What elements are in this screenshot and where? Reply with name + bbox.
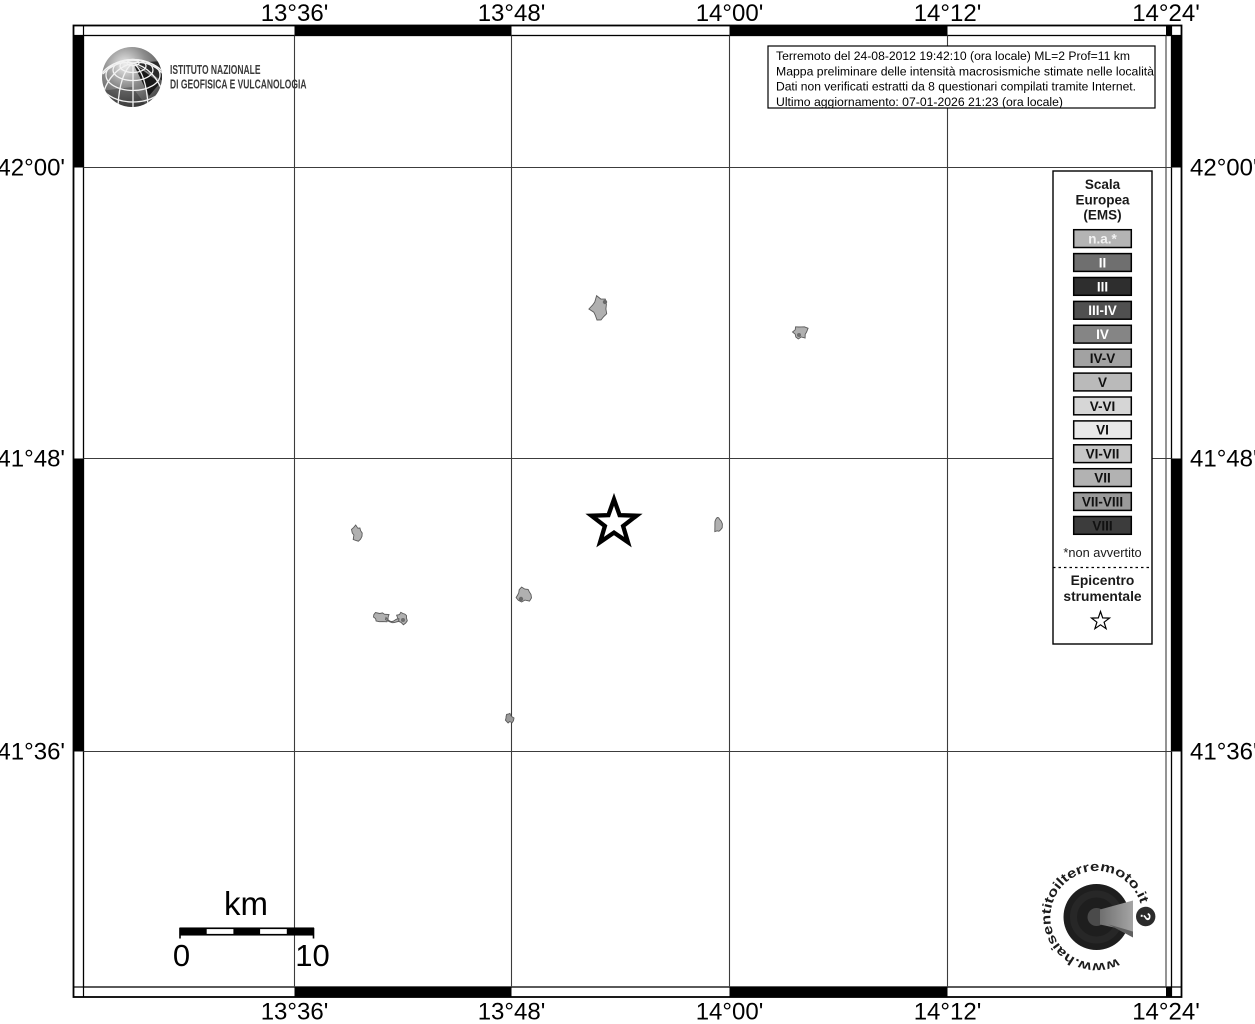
- svg-text:V: V: [1098, 375, 1107, 390]
- svg-text:Terremoto del 24-08-2012 19:42: Terremoto del 24-08-2012 19:42:10 (ora l…: [776, 49, 1130, 63]
- svg-text:*non avvertito: *non avvertito: [1063, 545, 1141, 560]
- svg-text:13°48': 13°48': [478, 999, 546, 1024]
- svg-text:14°00': 14°00': [696, 999, 764, 1024]
- svg-text:14°12': 14°12': [914, 0, 982, 27]
- svg-text:III: III: [1097, 279, 1108, 294]
- svg-text:?: ?: [1137, 912, 1154, 922]
- svg-text:DI GEOFISICA E VULCANOLOGIA: DI GEOFISICA E VULCANOLOGIA: [170, 78, 307, 92]
- svg-text:V-VI: V-VI: [1090, 399, 1116, 414]
- svg-text:14°24': 14°24': [1132, 999, 1200, 1024]
- svg-text:41°36': 41°36': [0, 739, 65, 766]
- svg-text:strumentale: strumentale: [1063, 589, 1142, 604]
- svg-text:II: II: [1099, 255, 1107, 270]
- svg-text:14°00': 14°00': [696, 0, 764, 27]
- svg-text:0: 0: [173, 938, 190, 973]
- svg-text:42°00': 42°00': [1190, 155, 1255, 182]
- svg-text:Scala: Scala: [1085, 177, 1121, 192]
- svg-text:10: 10: [295, 938, 329, 973]
- svg-text:13°36': 13°36': [261, 999, 329, 1024]
- svg-text:Europea: Europea: [1075, 192, 1130, 207]
- svg-text:14°12': 14°12': [914, 999, 982, 1024]
- svg-text:III-IV: III-IV: [1088, 303, 1117, 318]
- svg-text:41°48': 41°48': [0, 446, 65, 473]
- svg-text:VII: VII: [1094, 471, 1111, 486]
- svg-text:VII-VIII: VII-VIII: [1082, 494, 1123, 509]
- svg-text:n.a.*: n.a.*: [1088, 232, 1117, 247]
- svg-text:Dati non verificati estratti d: Dati non verificati estratti da 8 questi…: [776, 80, 1136, 94]
- svg-text:Ultimo aggiornamento: 07-01-20: Ultimo aggiornamento: 07-01-2026 21:23 (…: [776, 95, 1063, 109]
- svg-text:41°36': 41°36': [1190, 739, 1255, 766]
- svg-text:ISTITUTO NAZIONALE: ISTITUTO NAZIONALE: [170, 63, 261, 77]
- svg-text:42°00': 42°00': [0, 155, 65, 182]
- svg-text:VIII: VIII: [1092, 518, 1112, 533]
- svg-text:(EMS): (EMS): [1083, 208, 1121, 223]
- svg-text:IV-V: IV-V: [1090, 351, 1116, 366]
- svg-text:13°36': 13°36': [261, 0, 329, 27]
- svg-text:Epicentro: Epicentro: [1071, 573, 1135, 588]
- svg-text:VI-VII: VI-VII: [1086, 447, 1120, 462]
- svg-text:13°48': 13°48': [478, 0, 546, 27]
- svg-text:41°48': 41°48': [1190, 446, 1255, 473]
- svg-text:14°24': 14°24': [1132, 0, 1200, 27]
- svg-text:IV: IV: [1096, 327, 1109, 342]
- svg-text:Mappa preliminare delle intens: Mappa preliminare delle intensità macros…: [776, 64, 1154, 78]
- svg-text:VI: VI: [1096, 423, 1109, 438]
- svg-text:km: km: [224, 885, 268, 922]
